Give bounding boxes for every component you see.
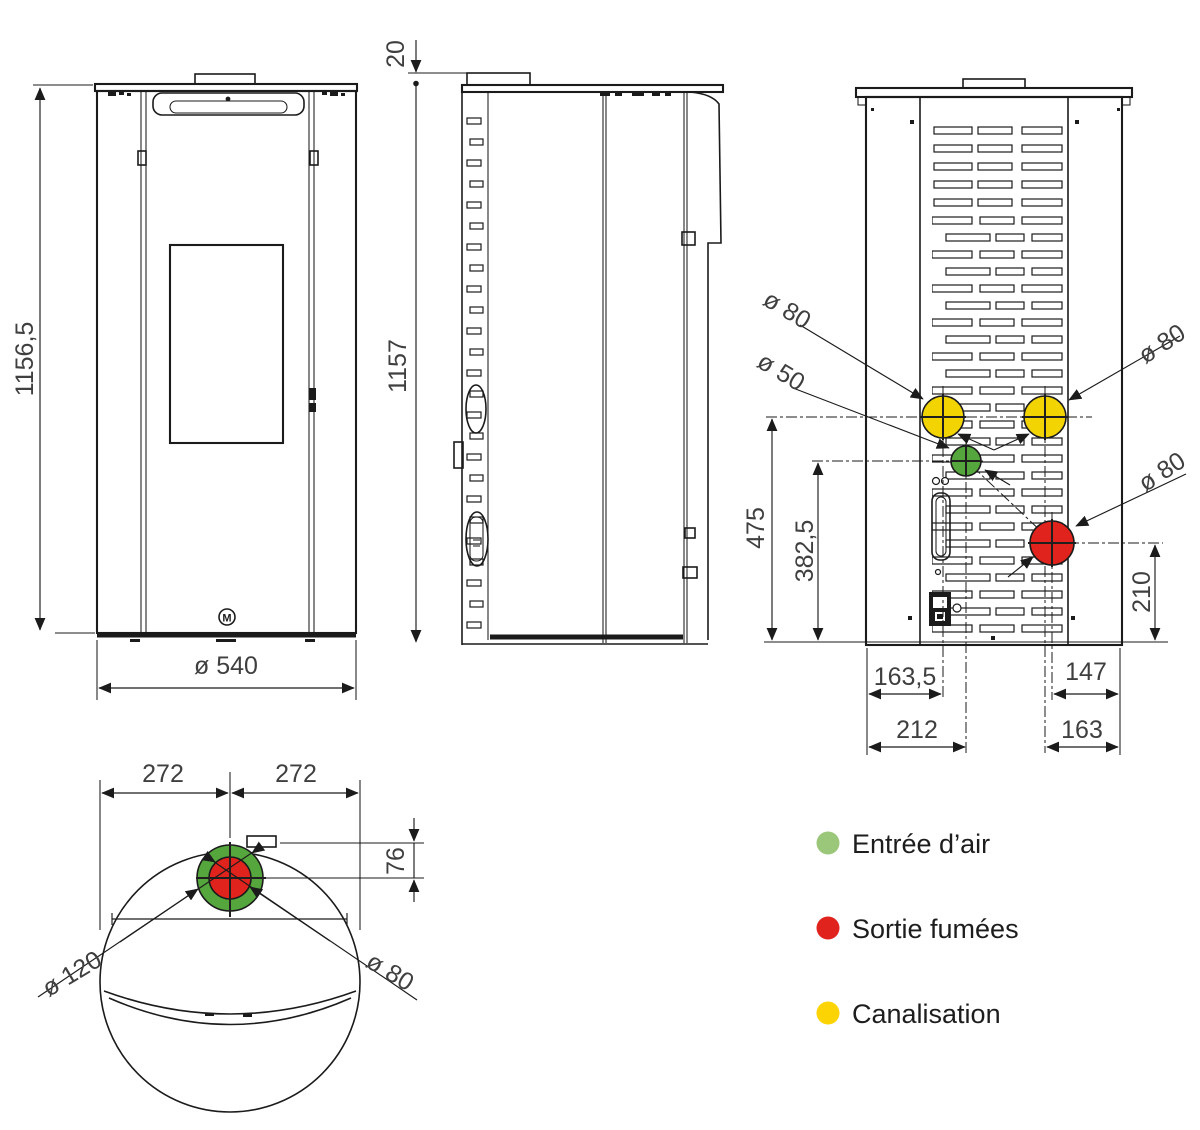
front-top-grille [153,93,304,115]
flue-dia-top-label: ø 80 [361,947,418,997]
flue-x-label: 147 [1065,658,1107,686]
brand-logo-letter: M [222,613,231,625]
side-view: 20 1157 [382,40,723,645]
side-height-label: 1157 [384,339,412,393]
legend-air-inlet-label: Entrée d’air [852,829,990,859]
front-height-label: 1156,5 [11,322,39,397]
drawing-canvas: 1156,5 M ø 540 20 [0,0,1200,1130]
door-window [170,245,283,443]
side-back-profile [690,92,721,640]
front-top-cap [195,74,255,84]
legend-canalisation-label: Canalisation [852,999,1001,1029]
air-inlet-x-label: 212 [896,716,938,744]
rear-view: ø 80 ø 50 ø 80 ø 80 475 382,5 210 163,5 … [742,79,1191,755]
top-view: 272 272 76 ø 120 ø 80 [37,760,424,1112]
duct-left-x-label: 163,5 [874,663,937,691]
side-top-cap [467,73,530,85]
legend-canalisation-icon [817,1002,840,1025]
front-body [97,91,356,633]
rear-top-plate [856,88,1132,97]
duct-left-dia-label: ø 80 [758,285,815,335]
legend: Entrée d’air Sortie fumées Canalisation [817,829,1019,1029]
flue-dia-label: ø 80 [1133,447,1190,498]
front-view: 1156,5 M ø 540 [11,74,357,700]
side-top-plate [462,85,723,92]
rear-top-cap [963,79,1025,88]
legend-flue-outlet-icon [817,917,840,940]
air-ring-dia-label: ø 120 [37,946,106,1003]
air-inlet-height-label: 382,5 [791,520,819,583]
top-cap-tab [247,836,276,847]
half-width-right-label: 272 [275,760,317,788]
legend-air-inlet-icon [817,832,840,855]
duct-right-x-label: 163 [1061,716,1103,744]
door-hinge-left [138,151,146,165]
air-inlet-dia-label: ø 50 [752,347,809,397]
duct-right-dia-label: ø 80 [1133,319,1190,370]
rear-vent-grille-top [932,122,1064,214]
ducts-height-label: 475 [742,507,770,549]
power-fuse [953,604,961,612]
flue-offset-label: 76 [382,847,410,875]
legend-flue-outlet-label: Sortie fumées [852,914,1019,944]
side-top-thickness-label: 20 [382,40,410,68]
half-width-left-label: 272 [142,760,184,788]
stove-dimension-drawing: 1156,5 M ø 540 20 [0,0,1200,1130]
flue-height-label: 210 [1128,571,1156,613]
grille-screw-dot [226,97,231,102]
front-width-label: ø 540 [194,652,258,680]
door-lock [309,388,316,400]
